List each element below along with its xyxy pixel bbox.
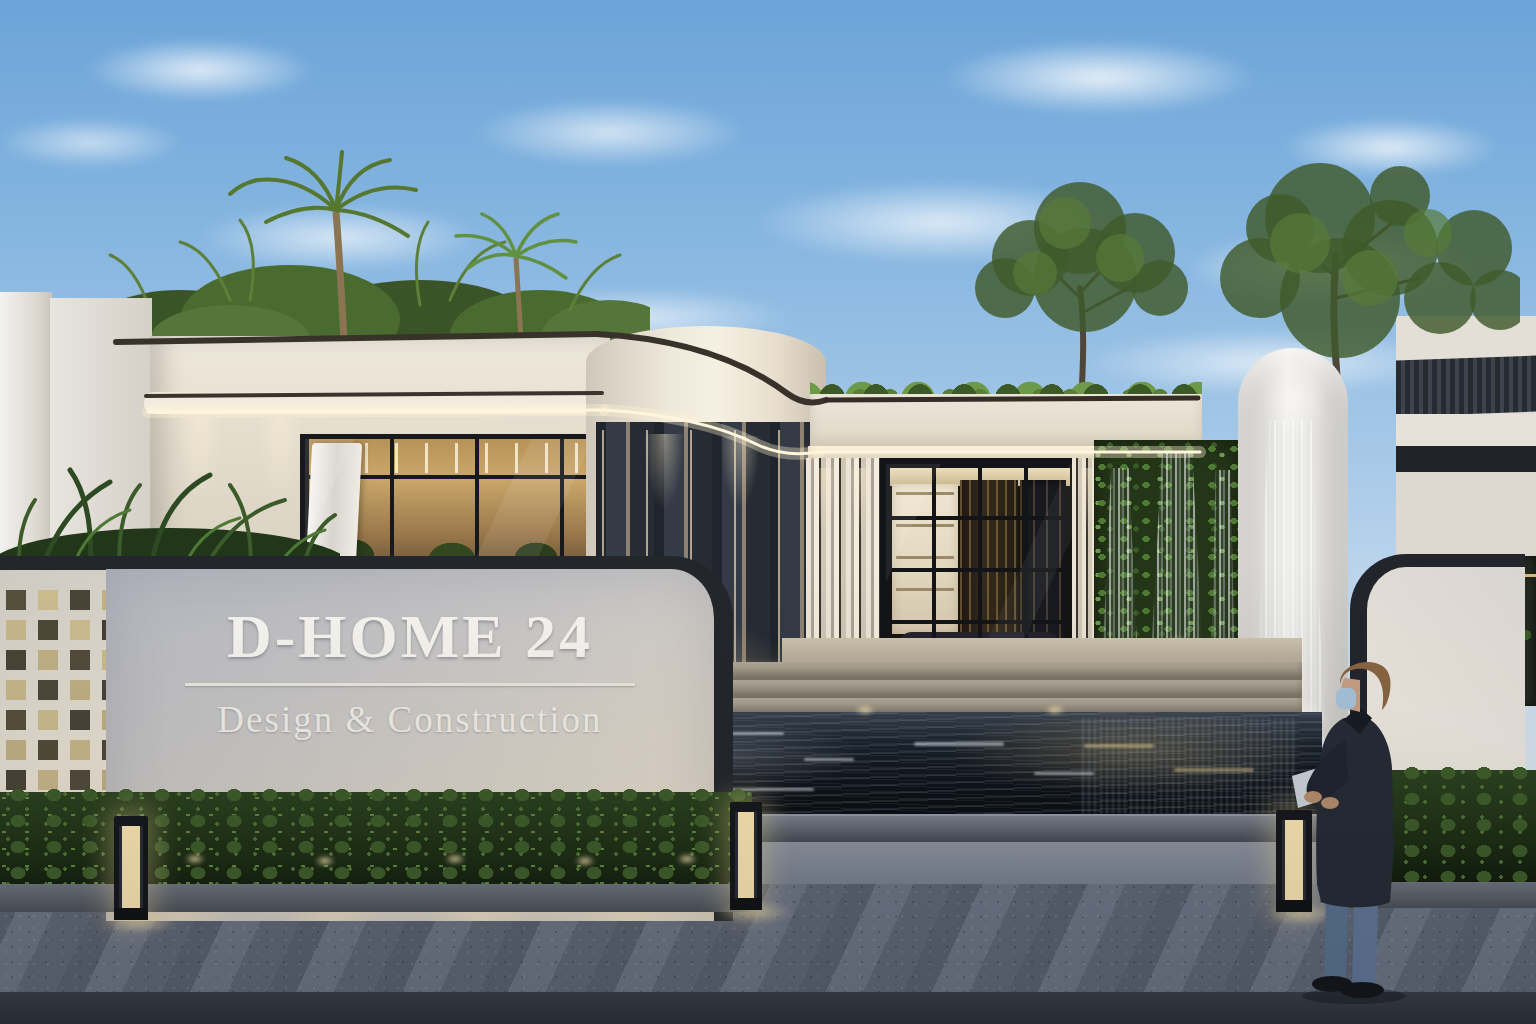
architectural-rendering: D-HOME 24 Design & Construction — [0, 0, 1536, 1024]
hedge-ground-light — [180, 852, 210, 866]
hedge-ground-light — [570, 854, 600, 868]
shoe — [1340, 982, 1384, 998]
bollard-cap — [114, 816, 148, 826]
jeans-leg — [1352, 900, 1378, 984]
bollard-base — [114, 908, 148, 920]
water-sparkle — [914, 742, 1004, 746]
sign-text-block: D-HOME 24 Design & Construction — [150, 605, 670, 785]
hand — [1321, 797, 1339, 809]
coat — [1316, 716, 1394, 907]
person-visitor — [1288, 648, 1424, 1004]
sign-brand-text: D-HOME 24 — [150, 605, 670, 667]
water-sparkle — [1084, 744, 1154, 748]
hedge-leaf-texture — [0, 786, 752, 894]
sign-divider-rule — [185, 683, 635, 686]
bollard-cap — [730, 802, 762, 812]
bollard-light — [114, 816, 148, 920]
hedge-ground-light — [672, 852, 702, 866]
hedge-ground-light — [310, 854, 340, 868]
jeans-leg — [1324, 900, 1348, 978]
sign-tagline-text: Design & Construction — [150, 698, 670, 741]
hand — [1304, 791, 1322, 803]
pond-edge-light — [1040, 704, 1070, 716]
hedge-ground-light — [440, 852, 470, 866]
bollard-light — [730, 802, 762, 910]
water-sparkle — [1174, 768, 1254, 772]
face-mask — [1336, 688, 1356, 709]
breeze-block-holes — [6, 590, 26, 610]
bollard-base — [730, 898, 762, 910]
entrance-floor — [782, 638, 1302, 664]
water-sparkle — [804, 758, 854, 761]
pond-edge-light — [850, 704, 880, 716]
water-sparkle — [1034, 772, 1094, 775]
